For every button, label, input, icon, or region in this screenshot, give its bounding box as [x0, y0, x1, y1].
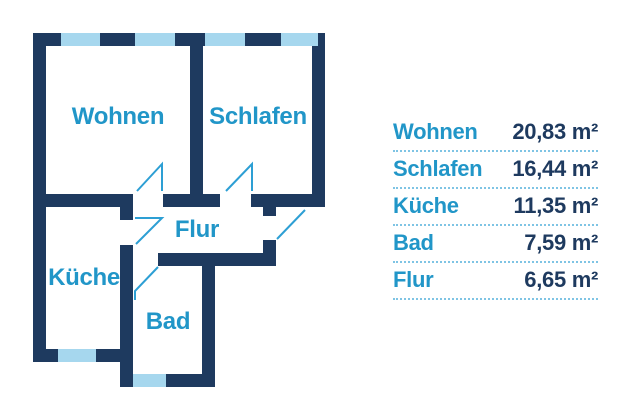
wall-mid-row-a	[33, 194, 133, 207]
table-row: Schlafen 16,44 m²	[393, 152, 598, 189]
window-marker	[133, 374, 166, 387]
wall-right	[312, 33, 325, 207]
legend-room-name: Bad	[393, 230, 434, 256]
door-swing-icon	[277, 210, 305, 239]
area-table: Wohnen 20,83 m² Schlafen 16,44 m² Küche …	[393, 115, 598, 300]
legend-room-area: 7,59 m²	[524, 230, 598, 256]
door-swing-icon	[226, 164, 252, 191]
legend-room-area: 20,83 m²	[512, 119, 598, 145]
wall-bad-right	[202, 253, 215, 387]
wall-kueche-divider-upper	[120, 194, 133, 220]
table-row: Flur 6,65 m²	[393, 263, 598, 300]
room-label-bad: Bad	[146, 308, 190, 336]
room-label-kueche: Küche	[48, 264, 120, 292]
wall-wohnen-schlafen-divider	[190, 46, 203, 207]
wall-flur-bottom	[158, 253, 276, 266]
legend-room-area: 11,35 m²	[514, 193, 598, 219]
table-row: Küche 11,35 m²	[393, 189, 598, 226]
wall-entrance-jamb-upper	[263, 207, 276, 216]
window-marker	[58, 349, 96, 362]
legend-room-name: Schlafen	[393, 156, 482, 182]
window-marker	[61, 33, 100, 46]
window-marker	[135, 33, 175, 46]
room-label-wohnen: Wohnen	[72, 103, 164, 131]
legend-room-area: 16,44 m²	[512, 156, 598, 182]
room-label-flur: Flur	[175, 216, 219, 244]
table-row: Wohnen 20,83 m²	[393, 115, 598, 152]
door-swing-icon	[137, 164, 162, 191]
legend-room-area: 6,65 m²	[524, 267, 598, 293]
screenshot-root: Wohnen Schlafen Flur Küche Bad Wohnen 20…	[0, 0, 630, 420]
wall-kueche-divider-lower	[120, 245, 133, 387]
table-row: Bad 7,59 m²	[393, 226, 598, 263]
wall-mid-row-b	[163, 194, 220, 207]
legend-room-name: Flur	[393, 267, 433, 293]
wall-entrance-jamb-lower	[263, 240, 276, 253]
window-marker	[281, 33, 318, 46]
window-marker	[205, 33, 245, 46]
wall-mid-row-c	[251, 194, 325, 207]
legend-room-name: Küche	[393, 193, 459, 219]
room-label-schlafen: Schlafen	[209, 103, 307, 131]
legend-room-name: Wohnen	[393, 119, 478, 145]
door-swing-icon	[135, 267, 158, 300]
door-swing-icon	[135, 218, 162, 244]
